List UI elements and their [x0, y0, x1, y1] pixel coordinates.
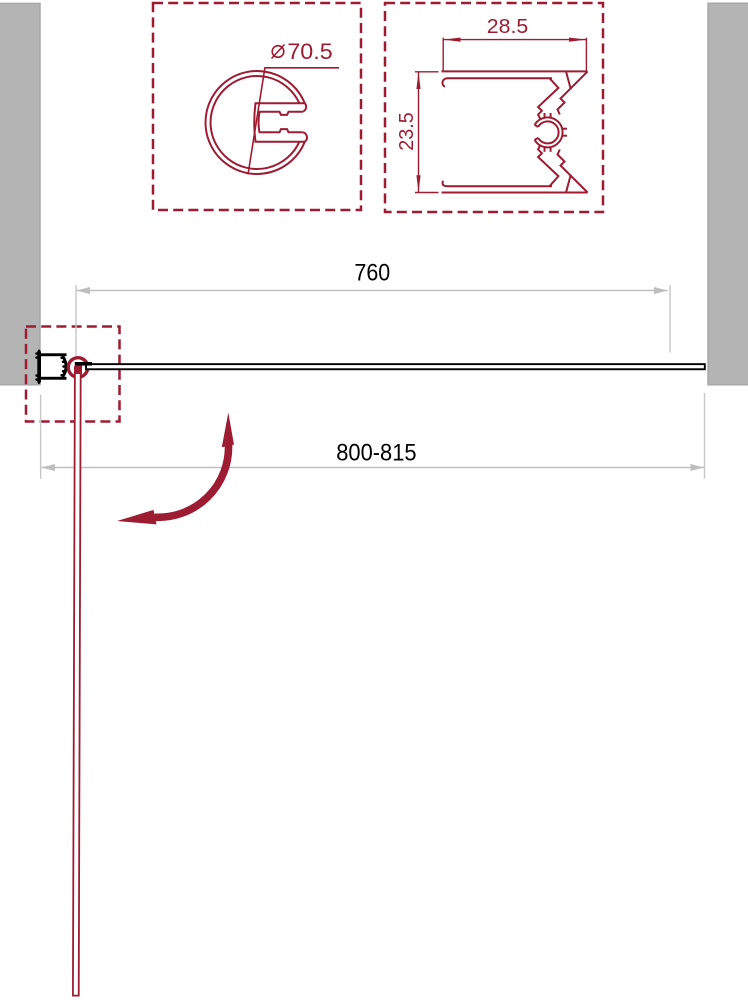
- svg-text:800-815: 800-815: [336, 440, 416, 467]
- svg-text:70.5: 70.5: [287, 39, 332, 64]
- svg-text:23.5: 23.5: [395, 112, 418, 151]
- svg-text:760: 760: [354, 260, 390, 287]
- svg-text:28.5: 28.5: [487, 15, 529, 38]
